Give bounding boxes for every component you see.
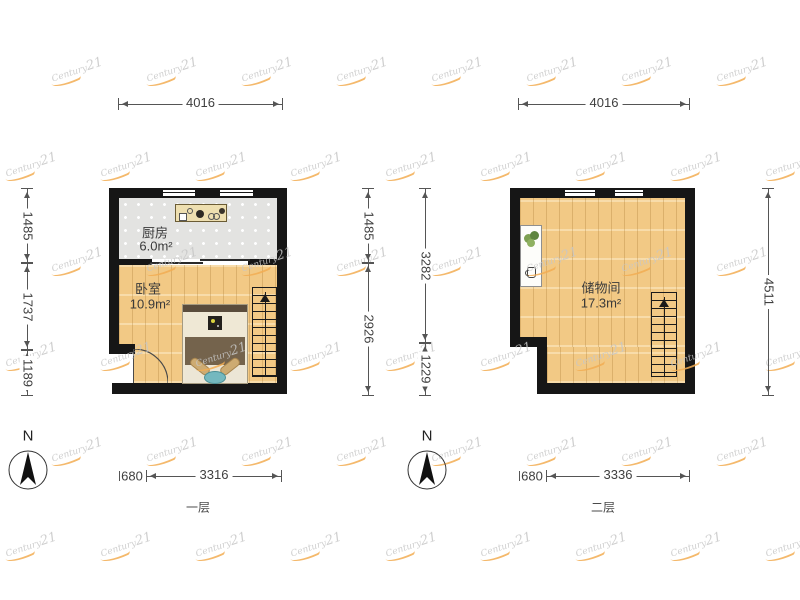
- brand-watermark: Century21: [383, 150, 438, 181]
- floorplan-page: 厨房 6.0m² 卧室 10.9m² 储物间: [0, 0, 800, 600]
- brand-watermark: Century21: [49, 55, 104, 86]
- brand-watermark: Century21: [3, 150, 58, 181]
- dim-value: 4016: [586, 96, 623, 111]
- brand-watermark: Century21: [288, 150, 343, 181]
- brand-watermark: Century21: [239, 435, 294, 466]
- compass-icon: [6, 448, 50, 492]
- dim-value: 2926: [361, 312, 376, 347]
- kitchen-area: 6.0m²: [139, 240, 172, 253]
- watermark-layer: Century21Century21Century21Century21Cent…: [0, 0, 800, 600]
- brand-watermark: Century21: [619, 55, 674, 86]
- brand-watermark: Century21: [429, 55, 484, 86]
- dim-value: 1229: [418, 352, 433, 387]
- brand-watermark: Century21: [334, 435, 389, 466]
- brand-watermark: Century21: [524, 245, 579, 276]
- brand-watermark: Century21: [714, 55, 769, 86]
- brand-watermark: Century21: [288, 340, 343, 371]
- dim-value: 3316: [196, 468, 233, 483]
- dim-value: 4511: [761, 275, 776, 309]
- brand-watermark: Century21: [429, 245, 484, 276]
- dim-floor1-bottom: 3316: [146, 470, 282, 482]
- dim-value: 1485: [20, 209, 35, 244]
- floor1-name: 一层: [186, 499, 210, 516]
- dim-floor2-left-1: 3282: [419, 188, 431, 344]
- brand-watermark: Century21: [383, 530, 438, 561]
- bedroom-area: 10.9m²: [130, 298, 170, 311]
- dim-tick: [519, 471, 520, 481]
- brand-watermark: Century21: [619, 435, 674, 466]
- brand-watermark: Century21: [288, 530, 343, 561]
- brand-watermark: Century21: [3, 530, 58, 561]
- dim-floor2-bottom: 3336: [546, 470, 690, 482]
- dim-floor2-top: 4016: [518, 98, 690, 110]
- brand-watermark: Century21: [193, 530, 248, 561]
- brand-watermark: Century21: [573, 530, 628, 561]
- brand-watermark: Century21: [144, 55, 199, 86]
- brand-watermark: Century21: [239, 55, 294, 86]
- dim-value: 1737: [20, 289, 35, 324]
- brand-watermark: Century21: [619, 245, 674, 276]
- brand-watermark: Century21: [714, 435, 769, 466]
- dim-tick: [119, 471, 120, 481]
- dim-offset-value: 680: [521, 470, 543, 483]
- brand-watermark: Century21: [573, 150, 628, 181]
- brand-watermark: Century21: [98, 340, 153, 371]
- dim-value: 4016: [182, 96, 219, 111]
- brand-watermark: Century21: [334, 55, 389, 86]
- floor2-name: 二层: [591, 499, 615, 516]
- brand-watermark: Century21: [193, 340, 248, 371]
- brand-watermark: Century21: [98, 530, 153, 561]
- storage-label: 储物间: [581, 282, 620, 295]
- dim-value: 3282: [418, 249, 433, 284]
- brand-watermark: Century21: [478, 150, 533, 181]
- brand-watermark: Century21: [573, 340, 628, 371]
- brand-watermark: Century21: [98, 150, 153, 181]
- dim-floor1-right-1: 1485: [362, 188, 374, 264]
- brand-watermark: Century21: [524, 55, 579, 86]
- brand-watermark: Century21: [49, 435, 104, 466]
- brand-watermark: Century21: [524, 435, 579, 466]
- compass-icon: [405, 448, 449, 492]
- dim-floor1-left-1: 1485: [21, 188, 33, 264]
- brand-watermark: Century21: [668, 530, 723, 561]
- dim-floor1-top: 4016: [118, 98, 283, 110]
- bedroom-label: 卧室: [135, 283, 161, 296]
- brand-watermark: Century21: [668, 150, 723, 181]
- brand-watermark: Century21: [478, 340, 533, 371]
- brand-watermark: Century21: [763, 530, 800, 561]
- brand-watermark: Century21: [239, 245, 294, 276]
- brand-watermark: Century21: [144, 435, 199, 466]
- dim-value: 1189: [20, 356, 35, 390]
- brand-watermark: Century21: [478, 530, 533, 561]
- dim-floor1-left-2: 1737: [21, 262, 33, 351]
- north-label: N: [422, 428, 433, 445]
- dim-offset-value: 680: [121, 470, 143, 483]
- dim-floor2-right: 4511: [762, 188, 774, 396]
- dim-floor1-right-2: 2926: [362, 262, 374, 396]
- brand-watermark: Century21: [763, 150, 800, 181]
- dim-floor1-left-3: 1189: [21, 349, 33, 396]
- north-label: N: [23, 428, 34, 445]
- brand-watermark: Century21: [49, 245, 104, 276]
- brand-watermark: Century21: [668, 340, 723, 371]
- dim-floor2-left-2: 1229: [419, 342, 431, 396]
- brand-watermark: Century21: [193, 150, 248, 181]
- dim-value: 3336: [600, 468, 637, 483]
- storage-area: 17.3m²: [581, 297, 621, 310]
- dim-value: 1485: [361, 209, 376, 244]
